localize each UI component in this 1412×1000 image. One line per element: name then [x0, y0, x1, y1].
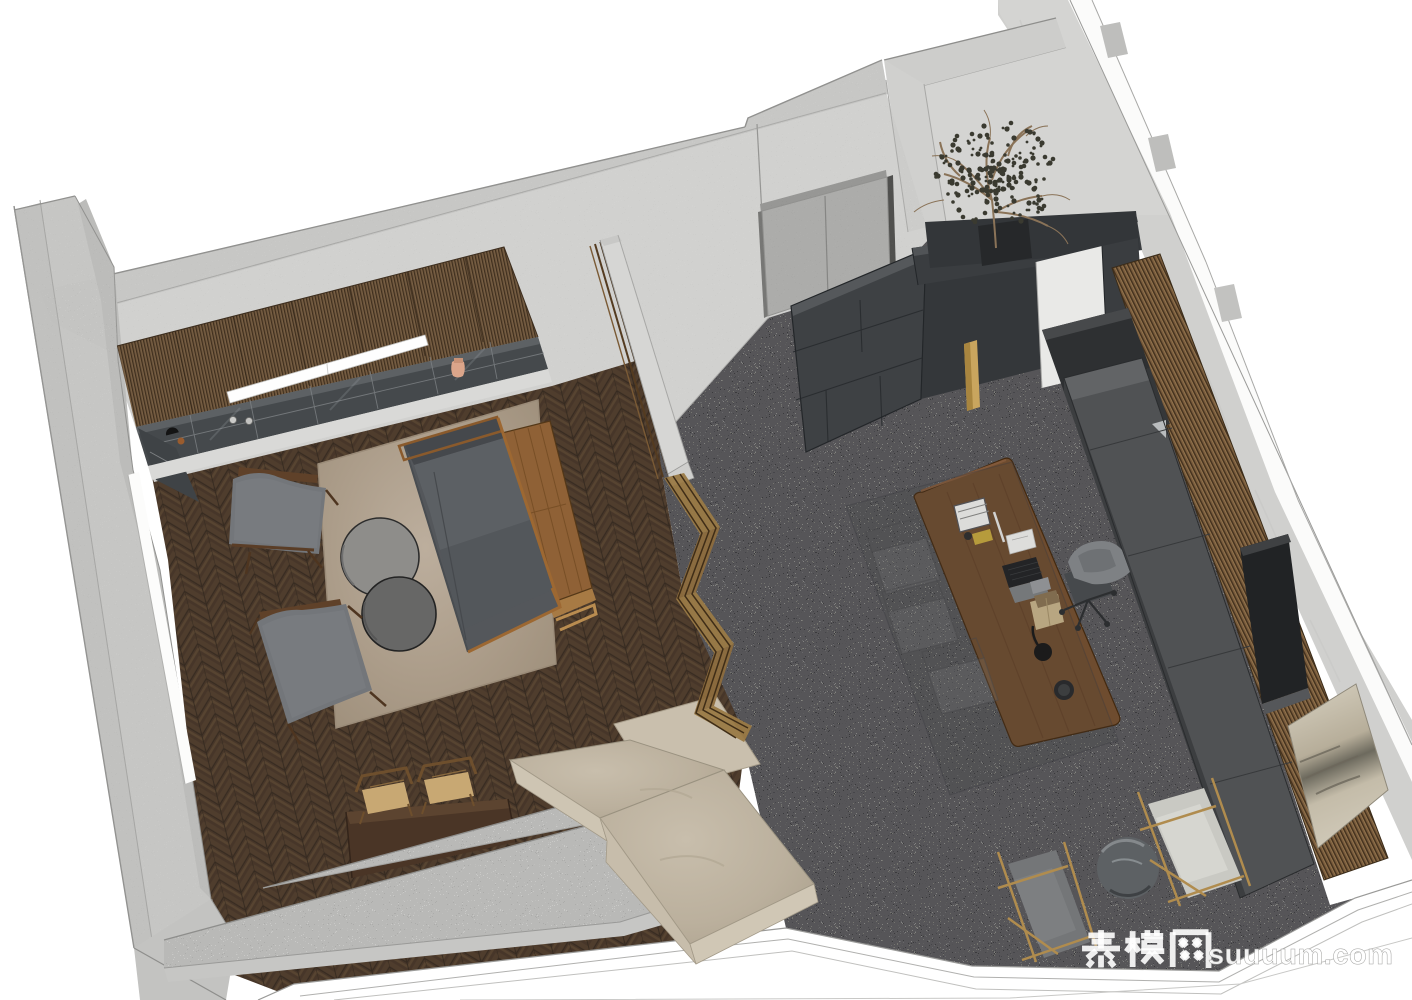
svg-text:suuuum.com: suuuum.com — [1208, 939, 1393, 971]
